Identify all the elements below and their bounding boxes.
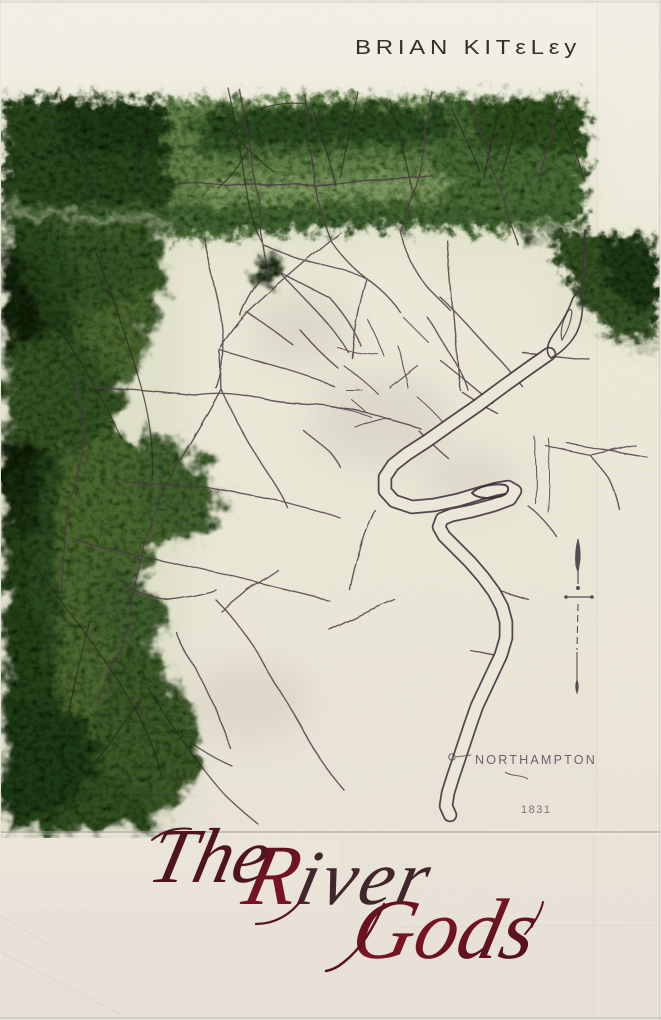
svg-text:NORTHAMPTON: NORTHAMPTON (475, 753, 597, 767)
svg-text:BRIAN KITεLεy: BRIAN KITεLεy (355, 37, 581, 59)
svg-text:1831: 1831 (521, 804, 551, 816)
svg-text:Gods: Gods (344, 881, 548, 977)
